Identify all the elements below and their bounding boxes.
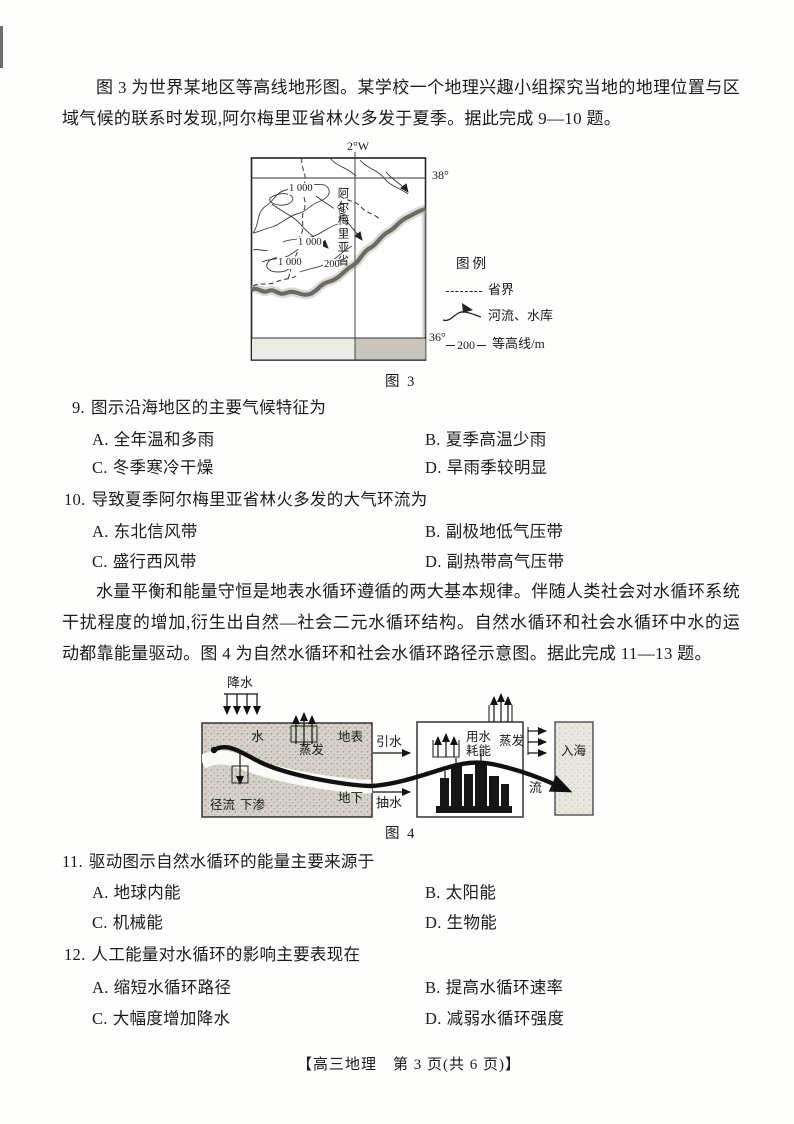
- option-label: B.: [425, 430, 441, 450]
- surface-label: 地表: [338, 730, 363, 744]
- question-11-option-c: C.机械能: [92, 909, 163, 933]
- question-11: 11.驱动图示自然水循环的能量主要来源于: [62, 848, 375, 872]
- question-12-option-d: D.减弱水循环强度: [425, 1005, 564, 1029]
- option-text: 冬季寒冷干燥: [113, 454, 214, 478]
- question-11-number: 11.: [62, 852, 83, 872]
- question-10-stem: 导致夏季阿尔梅里亚省林火多发的大气环流为: [92, 486, 428, 510]
- river-legend-symbol: [442, 300, 484, 328]
- legend-title: 图例: [456, 256, 489, 272]
- contour-label-1000-b: 1 000: [297, 237, 323, 249]
- option-label: B.: [425, 883, 441, 903]
- question-9-option-a: A.全年温和多雨: [92, 426, 214, 450]
- evaporation-left-label: 蒸发: [299, 743, 324, 757]
- question-11-stem: 驱动图示自然水循环的能量主要来源于: [89, 848, 375, 872]
- water-use-energy-label: 用水耗能: [466, 730, 496, 758]
- option-label: C.: [92, 1009, 108, 1029]
- scan-edge-mark: [0, 26, 3, 68]
- contour-legend-value: 200: [457, 338, 475, 353]
- option-text: 地球内能: [114, 879, 181, 903]
- option-text: 缩短水循环路径: [114, 974, 232, 998]
- precipitation-label: 降水: [227, 676, 253, 691]
- option-text: 副热带高气压带: [447, 548, 565, 572]
- option-text: 东北信风带: [114, 518, 198, 542]
- question-10-option-d: D.副热带高气压带: [425, 548, 564, 572]
- pumping-label: 抽水: [376, 796, 402, 811]
- figure4-caption: 图 4: [385, 822, 416, 843]
- option-label: C.: [92, 913, 108, 933]
- question-9-stem: 图示沿海地区的主要气候特征为: [91, 394, 326, 418]
- question-10-option-a: A.东北信风带: [92, 518, 198, 542]
- figure3-caption: 图 3: [385, 370, 416, 391]
- question-12-option-a: A.缩短水循环路径: [92, 974, 231, 998]
- province-name-almeria: 阿尔梅里亚省: [336, 187, 348, 268]
- figure3-contour-map: 2°W 38° 36° 1 000 000 1 000 1 000 200 阿尔…: [250, 140, 550, 392]
- question-10-option-c: C.盛行西风带: [92, 548, 197, 572]
- option-label: D.: [425, 552, 442, 572]
- underground-label: 地下: [338, 791, 363, 805]
- option-text: 减弱水循环强度: [447, 1005, 565, 1029]
- option-label: C.: [92, 458, 108, 478]
- option-text: 太阳能: [446, 879, 496, 903]
- option-text: 全年温和多雨: [114, 426, 215, 450]
- boundary-legend-symbol: [446, 291, 482, 292]
- intro-paragraph-q11-13: 水量平衡和能量守恒是地表水循环遵循的两大基本规律。伴随人类社会对水循环系统干扰程…: [62, 576, 740, 669]
- contour-label-1000-c: 1 000: [277, 257, 303, 269]
- evaporation-right-label: 蒸发: [499, 734, 524, 748]
- parallel-38-label: 38°: [432, 169, 449, 183]
- option-label: B.: [425, 522, 441, 542]
- option-text: 机械能: [113, 909, 163, 933]
- question-9: 9.图示沿海地区的主要气候特征为: [72, 394, 326, 418]
- page-footer: 【高三地理 第 3 页(共 6 页)】: [24, 1053, 794, 1074]
- question-11-option-d: D.生物能: [425, 909, 497, 933]
- meridian-label: 2°W: [347, 140, 369, 154]
- question-10-option-b: B.副极地低气压带: [425, 518, 563, 542]
- option-label: C.: [92, 552, 108, 572]
- runoff-label: 径流: [210, 798, 235, 812]
- question-9-option-c: C.冬季寒冷干燥: [92, 454, 214, 478]
- option-label: A.: [92, 883, 109, 903]
- question-12: 12.人工能量对水循环的影响主要表现在: [64, 941, 360, 965]
- question-9-option-b: B.夏季高温少雨: [425, 426, 547, 450]
- infiltration-label: 下渗: [240, 798, 265, 812]
- option-text: 旱雨季较明显: [447, 454, 548, 478]
- into-sea-label: 入海: [561, 744, 586, 758]
- parallel-36-label: 36°: [429, 331, 446, 345]
- option-label: D.: [425, 1009, 442, 1029]
- figure4-water-cycle-diagram: 降水 水 蒸发 地表 地下 径流 下渗 引水 抽水 用水耗能 蒸发 入海 流 图…: [195, 672, 605, 842]
- question-9-number: 9.: [72, 398, 85, 418]
- exam-page: 图 3 为世界某地区等高线地形图。某学校一个地理兴趣小组探究当地的地理位置与区域…: [0, 0, 794, 1124]
- question-11-option-b: B.太阳能: [425, 879, 496, 903]
- river-legend-label: 河流、水库: [488, 309, 553, 324]
- option-label: A.: [92, 978, 109, 998]
- option-text: 提高水循环速率: [446, 974, 564, 998]
- question-11-option-a: A.地球内能: [92, 879, 181, 903]
- option-text: 生物能: [447, 909, 497, 933]
- option-text: 副极地低气压带: [446, 518, 564, 542]
- option-label: D.: [425, 913, 442, 933]
- water-label: 水: [251, 730, 264, 745]
- flow-label: 流: [529, 781, 542, 796]
- contour-legend-symbol: 200: [446, 338, 486, 353]
- intro-paragraph-q9-10: 图 3 为世界某地区等高线地形图。某学校一个地理兴趣小组探究当地的地理位置与区域…: [62, 72, 740, 134]
- boundary-legend-label: 省界: [488, 283, 514, 298]
- option-label: A.: [92, 522, 109, 542]
- contour-label-1000-a: 1 000: [288, 183, 314, 195]
- option-label: B.: [425, 978, 441, 998]
- question-12-option-b: B.提高水循环速率: [425, 974, 563, 998]
- diversion-label: 引水: [376, 735, 402, 750]
- question-12-number: 12.: [64, 945, 86, 965]
- question-9-option-d: D.旱雨季较明显: [425, 454, 547, 478]
- contour-legend-label: 等高线/m: [492, 337, 545, 352]
- option-label: D.: [425, 458, 442, 478]
- question-10: 10.导致夏季阿尔梅里亚省林火多发的大气环流为: [64, 486, 428, 510]
- question-12-stem: 人工能量对水循环的影响主要表现在: [92, 941, 361, 965]
- option-text: 夏季高温少雨: [446, 426, 547, 450]
- option-text: 盛行西风带: [113, 548, 197, 572]
- question-10-number: 10.: [64, 490, 86, 510]
- option-label: A.: [92, 430, 109, 450]
- question-12-option-c: C.大幅度增加降水: [92, 1005, 230, 1029]
- option-text: 大幅度增加降水: [113, 1005, 231, 1029]
- water-cycle-drawing: [195, 672, 605, 842]
